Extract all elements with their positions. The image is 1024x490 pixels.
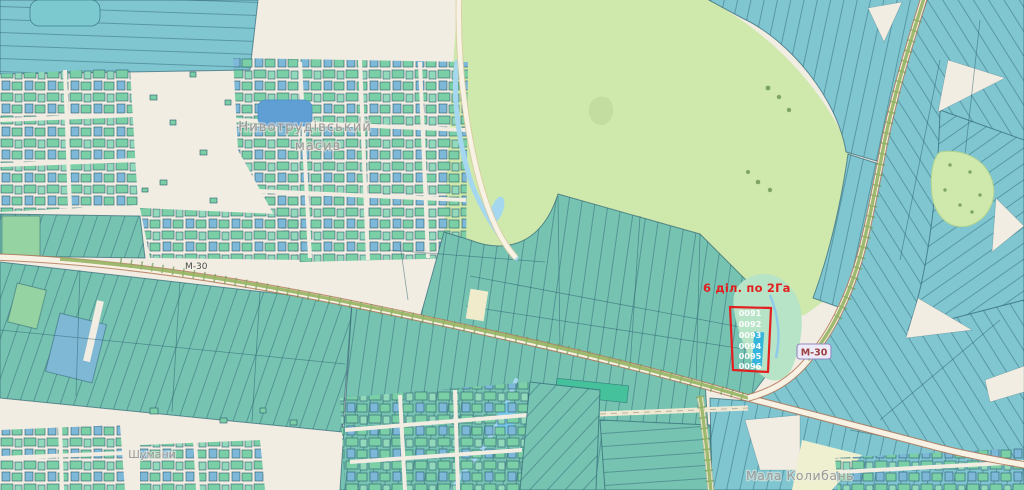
cadastral-map[interactable]: Нивотрудівський масив Шумани Мала Колиба… bbox=[0, 0, 1024, 490]
place-label-shumany: Шумани bbox=[128, 448, 176, 461]
place-label-masiv-line1: Нивотрудівський bbox=[238, 119, 372, 135]
road-ref-label-west: М-30 bbox=[185, 262, 208, 272]
map-canvas[interactable]: Нивотрудівський масив Шумани Мала Колиба… bbox=[0, 0, 1024, 490]
scrub-patch bbox=[589, 96, 613, 125]
parcel-ids: 0091 0092 0093 0094 0095 0096 bbox=[739, 308, 762, 371]
parcel-id-3: 0093 bbox=[739, 330, 762, 340]
parcel-id-1: 0091 bbox=[739, 308, 762, 318]
annotation-6-plots: 6 діл. по 2Га bbox=[703, 281, 791, 295]
parcel-id-6: 0096 bbox=[739, 361, 762, 371]
parcel-id-4: 0094 bbox=[739, 341, 762, 351]
place-label-masiv-line2: масив bbox=[295, 138, 342, 154]
parcel-id-5: 0095 bbox=[739, 351, 762, 361]
pond-nw bbox=[30, 0, 100, 26]
road-ref-badge-text: М-30 bbox=[801, 348, 828, 359]
field-block-stream-east bbox=[520, 382, 600, 490]
place-label-mala-kolyban: Мала Колибань bbox=[746, 468, 854, 483]
field-block-south bbox=[600, 420, 712, 490]
parcel-id-2: 0092 bbox=[739, 319, 762, 329]
road-ref-badge: М-30 bbox=[797, 344, 831, 359]
